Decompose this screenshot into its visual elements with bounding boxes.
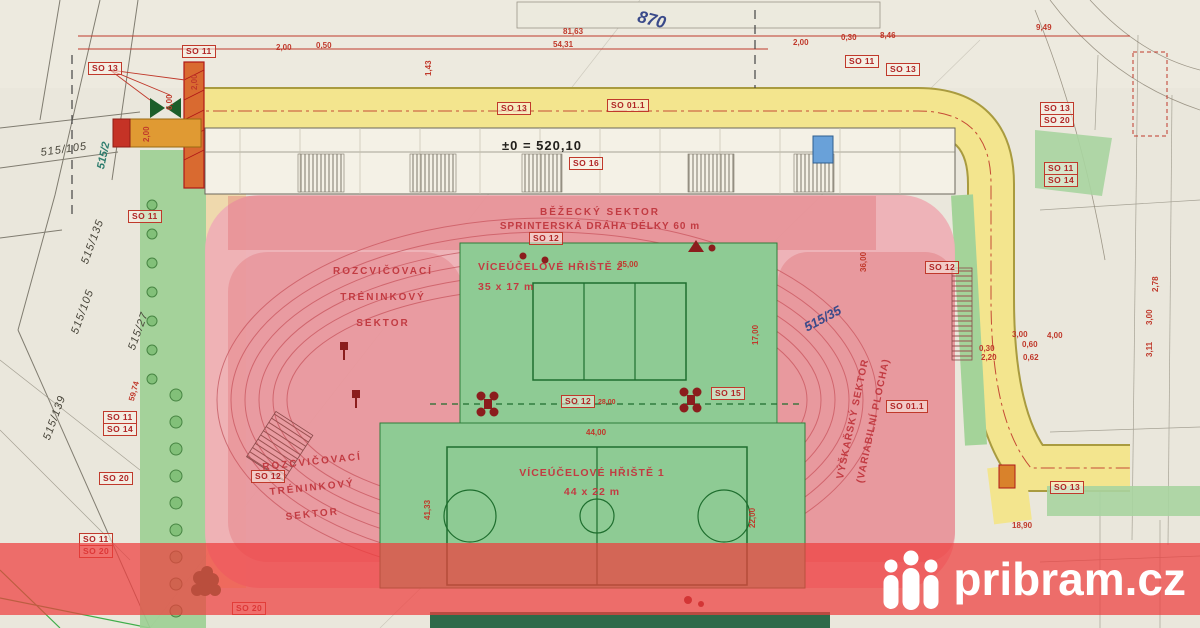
dimension-label: 2,00 <box>793 39 809 47</box>
so-box: SO 13 <box>497 102 531 115</box>
dimension-label: 35,00 <box>618 261 638 269</box>
court2-size-label: 35 x 17 m <box>478 282 534 293</box>
dimension-label: 22,00 <box>749 508 757 528</box>
dimension-label: 0,30 <box>841 34 857 42</box>
three-people-icon <box>879 546 943 612</box>
dimension-label: 41,33 <box>424 500 432 520</box>
dimension-label: 2,20 <box>981 354 997 362</box>
dimension-label: 3,00 <box>1012 331 1028 339</box>
so-box: SO 12 <box>529 232 563 245</box>
running-sector-label: BĚŽECKÝ SEKTOR <box>540 208 660 218</box>
so-box: SO 13 <box>1040 102 1074 115</box>
so-box: SO 11 <box>103 411 137 424</box>
plan-drawing <box>0 0 1200 628</box>
dimension-label: 2,00 <box>191 74 199 90</box>
dimension-label: 44,00 <box>586 429 606 437</box>
warmup-sector-label: ROZCVIČOVACÍ <box>333 267 433 277</box>
so-box: SO 12 <box>925 261 959 274</box>
dimension-label: 54,31 <box>553 41 573 49</box>
so-box: SO 11 <box>845 55 879 68</box>
dimension-label: 0,30 <box>979 345 995 353</box>
dimension-label: 9,49 <box>1036 24 1052 32</box>
dimension-label: 28,00 <box>598 399 616 406</box>
dimension-label: 6,00 <box>166 94 174 110</box>
dimension-label: 3,00 <box>1146 309 1154 325</box>
so-box: SO 15 <box>711 387 745 400</box>
so-box: SO 20 <box>99 472 133 485</box>
so-box: SO 01.1 <box>886 400 928 413</box>
dimension-label: 18,90 <box>1012 522 1032 530</box>
watermark-band: pribram.cz <box>0 543 1200 615</box>
running-sector-sublabel: SPRINTERSKÁ DRÁHA DÉLKY 60 m <box>500 222 700 232</box>
site-plan: SO 13 SO 11 SO 11 SO 11 SO 14 SO 20 SO 1… <box>0 0 1200 628</box>
blue-element <box>813 136 833 163</box>
dimension-label: 3,11 <box>1146 342 1154 357</box>
dimension-label: 0,60 <box>1022 341 1038 349</box>
so-box: SO 13 <box>88 62 122 75</box>
court1-size-label: 44 x 22 m <box>564 487 620 498</box>
elevation-label: ±0 = 520,10 <box>502 139 582 152</box>
court2-label: VÍCEÚČELOVÉ HŘIŠTĚ 2 <box>478 262 623 273</box>
so-box: SO 12 <box>561 395 595 408</box>
dimension-label: 1,43 <box>425 60 433 76</box>
court1-label: VÍCEÚČELOVÉ HŘIŠTĚ 1 <box>519 468 664 479</box>
warmup-sector-label: SEKTOR <box>356 319 410 329</box>
so-box: SO 20 <box>1040 114 1074 127</box>
dimension-label: 36,00 <box>860 252 868 272</box>
so-box: SO 16 <box>569 157 603 170</box>
dimension-label: 2,00 <box>143 126 151 142</box>
dimension-label: 0,62 <box>1023 354 1039 362</box>
warmup-sector-label: TRÉNINKOVÝ <box>340 293 426 303</box>
so-box: SO 11 <box>182 45 216 58</box>
dimension-label: 2,78 <box>1152 276 1160 292</box>
brand-text: pribram.cz <box>953 552 1186 606</box>
so-box: SO 13 <box>886 63 920 76</box>
so-box: SO 01.1 <box>607 99 649 112</box>
so-box: SO 13 <box>1050 481 1084 494</box>
so-box: SO 11 <box>128 210 162 223</box>
so-box: SO 14 <box>103 423 137 436</box>
so-box: SO 14 <box>1044 174 1078 187</box>
ladder-structure <box>952 268 972 360</box>
dimension-label: 17,00 <box>752 325 760 345</box>
dimension-label: 2,00 <box>276 44 292 52</box>
dimension-label: 4,00 <box>1047 332 1063 340</box>
dimension-label: 81,63 <box>563 28 583 36</box>
dimension-label: 8,46 <box>880 32 896 40</box>
so-box: SO 11 <box>1044 162 1078 175</box>
pribram-logo: pribram.cz <box>879 543 1186 615</box>
dimension-label: 0,50 <box>316 42 332 50</box>
